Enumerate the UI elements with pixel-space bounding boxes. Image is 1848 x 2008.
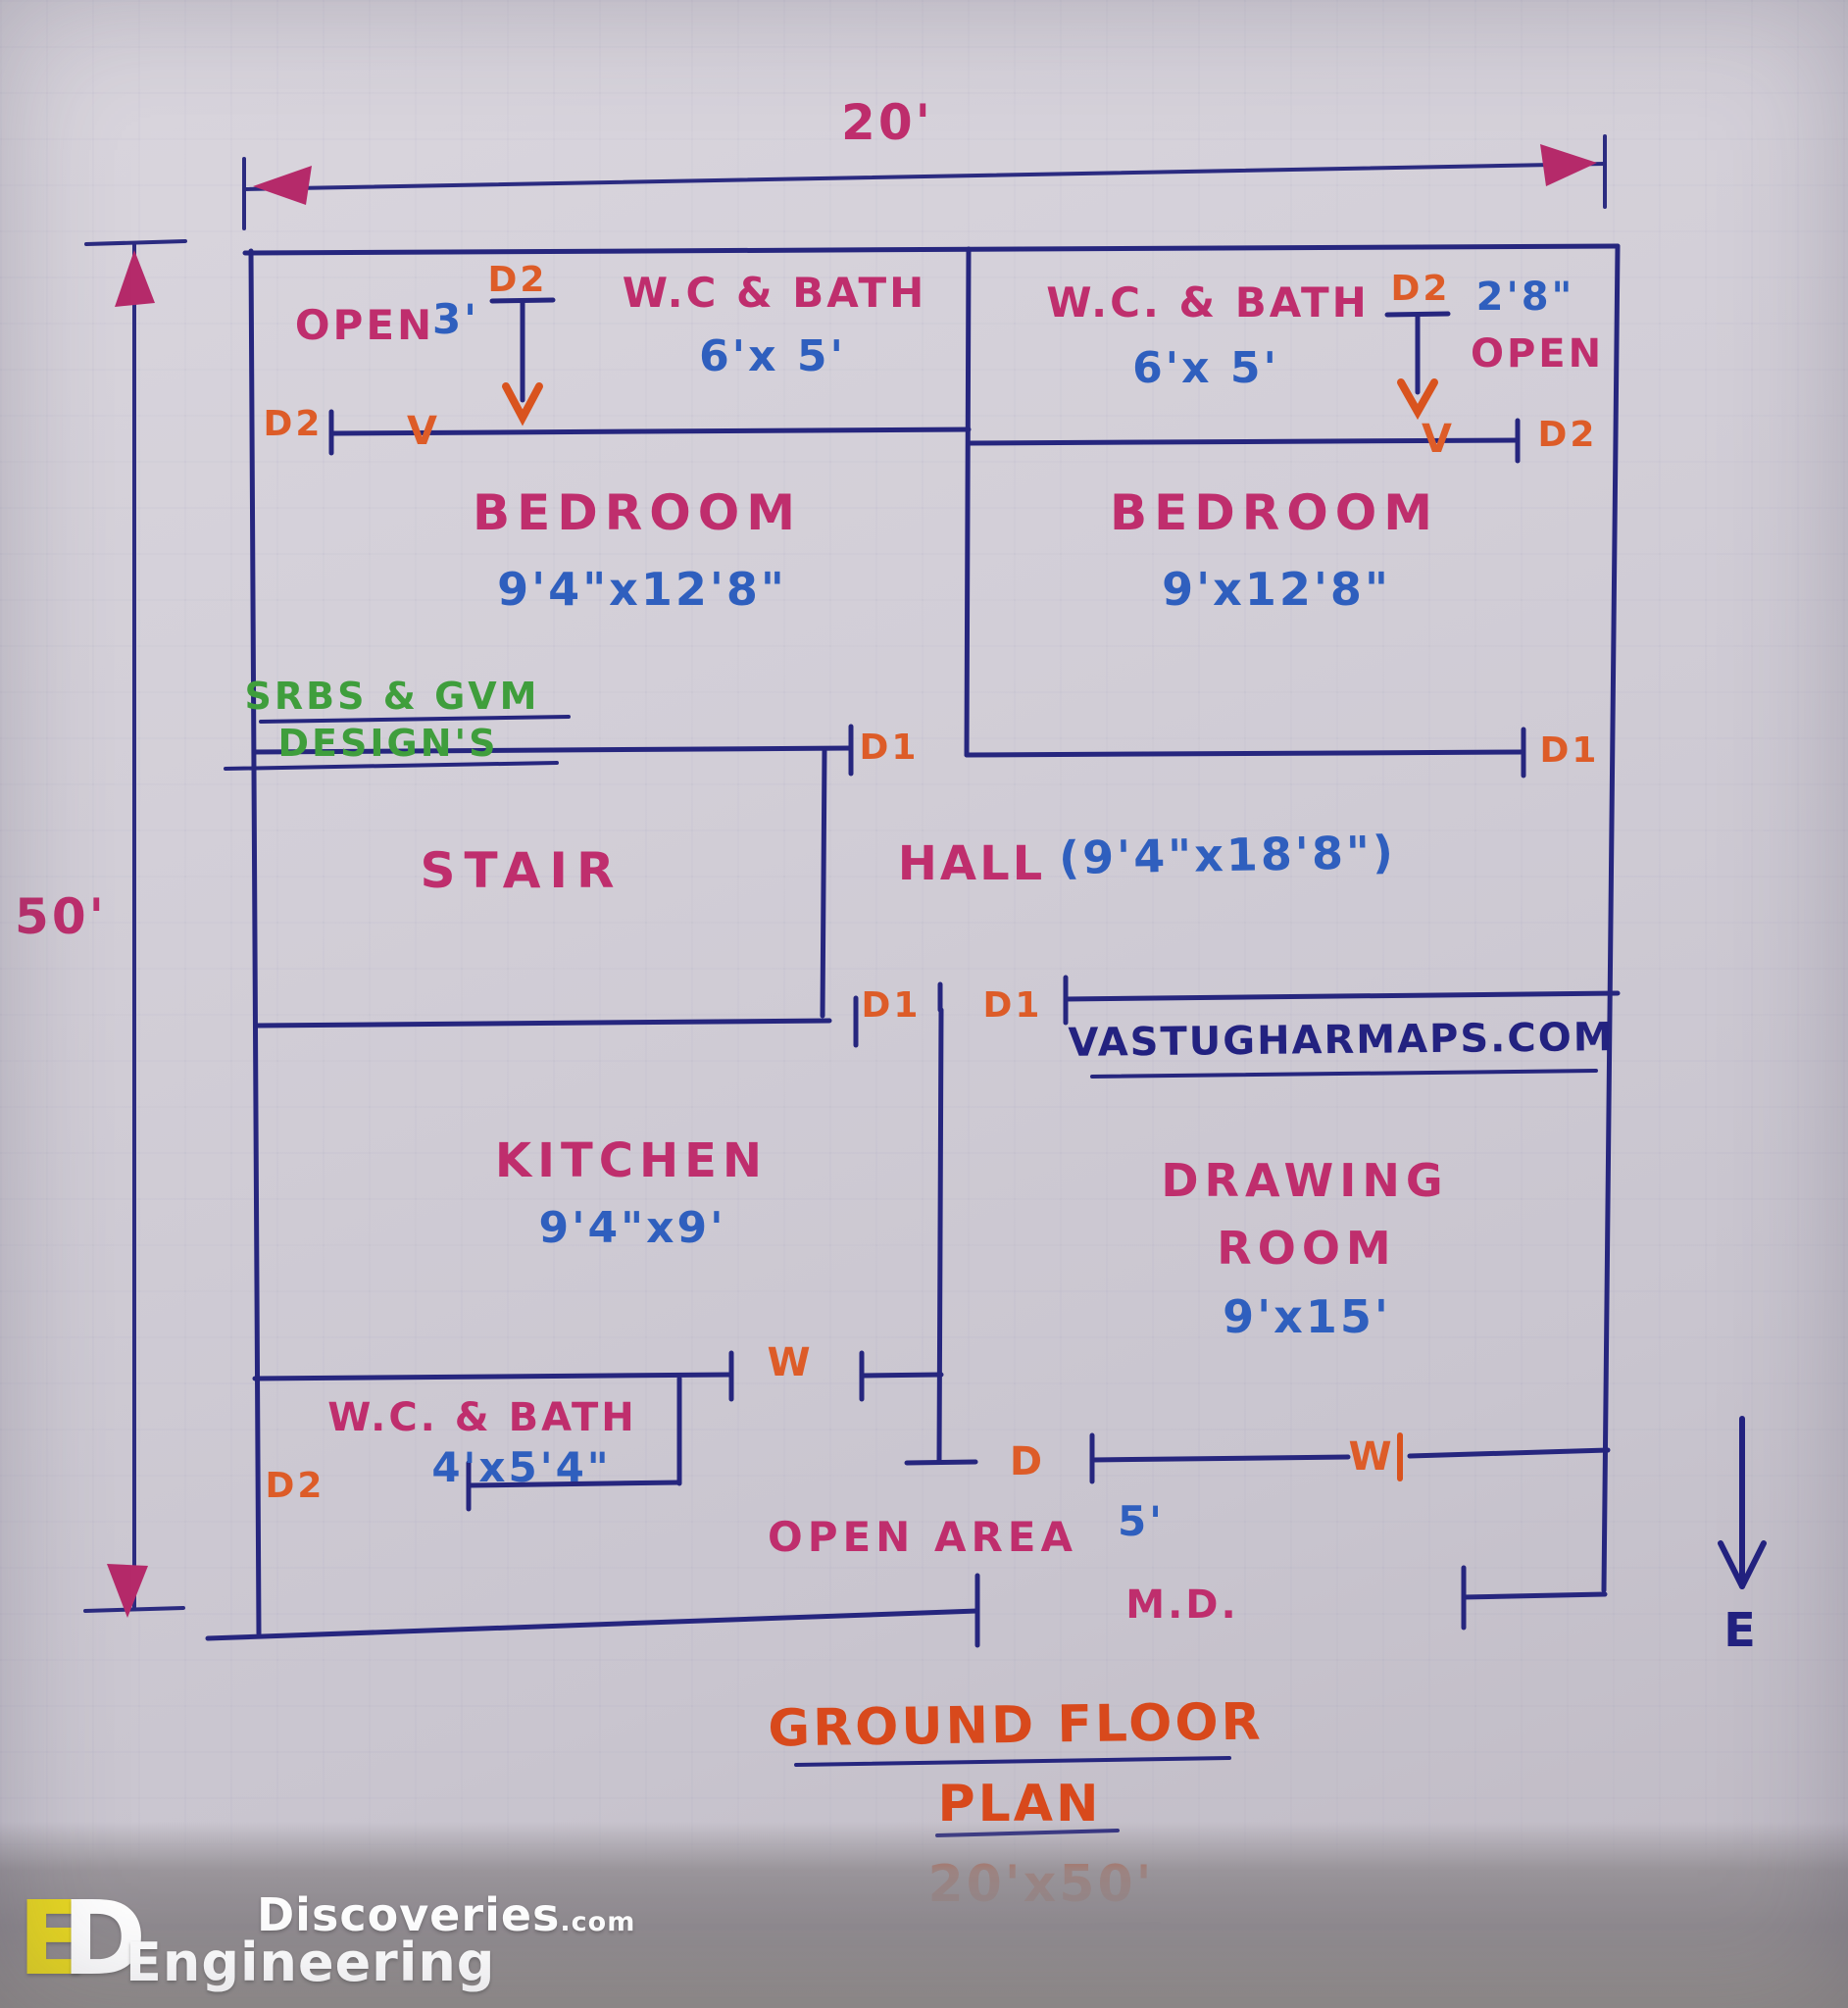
open-area-size: 5' — [1118, 1501, 1165, 1542]
plot-height-label: 50' — [15, 892, 107, 941]
door-d2-top-right-label: D2 — [1391, 272, 1451, 307]
plan-title-line1: GROUND FLOOR — [768, 1696, 1264, 1754]
designer-name-line2: DESIGN'S — [277, 725, 498, 762]
plot-width-label: 20' — [841, 98, 933, 147]
hall-room-size: (9'4"x18'8") — [1059, 829, 1397, 880]
wc-bath-top-right-name: W.C. & BATH — [1046, 282, 1370, 324]
wc-bath-lower-name: W.C. & BATH — [327, 1398, 636, 1437]
drawing-room-name-line1: DRAWING — [1161, 1158, 1448, 1203]
door-d1-bedroom-left-label: D1 — [860, 730, 920, 766]
drawing-room-size: 9'x15' — [1223, 1294, 1391, 1339]
wc-bath-lower-size: 4'x5'4" — [431, 1447, 611, 1488]
door-d1-hall-left-label: D1 — [862, 988, 922, 1024]
door-d2-top-left-label: D2 — [488, 263, 548, 298]
bedroom-left-size: 9'4"x12'8" — [497, 567, 787, 612]
door-d2-wall-left-label: D2 — [264, 407, 324, 442]
door-d-hall-label: D — [1010, 1442, 1045, 1481]
compass-east-label: E — [1723, 1607, 1759, 1654]
watermark-url: VASTUGHARMAPS.COM — [1068, 1018, 1614, 1063]
open-area-label: OPEN AREA — [768, 1517, 1077, 1558]
open-right-label: OPEN — [1471, 334, 1604, 374]
wc-bath-top-left-name: W.C & BATH — [623, 273, 927, 314]
floor-plan-photo: 20' 50' OPEN 3' D2 W.C & BATH 6'x 5' W.C… — [0, 0, 1848, 2008]
bedroom-right-size: 9'x12'8" — [1162, 567, 1391, 612]
door-d2-wc-label: D2 — [266, 1469, 325, 1504]
door-d1-hall-right-label: D1 — [983, 988, 1043, 1024]
open-left-size: 3' — [432, 299, 479, 340]
open-left-label: OPEN — [295, 305, 434, 346]
door-d2-wall-right-label: D2 — [1538, 418, 1598, 453]
window-drawing-label: W — [1348, 1437, 1394, 1477]
wc-bath-top-right-size: 6'x 5' — [1132, 347, 1279, 390]
photo-bottom-band: E D Discoveries.com Engineering — [0, 1822, 1848, 2008]
vent-left-label: V — [407, 412, 440, 451]
brand-com-suffix: .com — [560, 1907, 635, 1937]
main-door-label: M.D. — [1125, 1585, 1238, 1625]
bedroom-right-name: BEDROOM — [1110, 488, 1439, 537]
designer-name-line1: SRBS & GVM — [245, 678, 540, 715]
kitchen-room-name: KITCHEN — [495, 1137, 768, 1184]
brand-engineering-text: Engineering — [125, 1932, 495, 1993]
door-d1-bedroom-right-label: D1 — [1540, 733, 1600, 769]
window-kitchen-label: W — [767, 1343, 813, 1382]
stair-room-label: STAIR — [420, 846, 623, 895]
drawing-room-name-line2: ROOM — [1217, 1226, 1396, 1271]
wc-bath-top-left-size: 6'x 5' — [699, 335, 846, 378]
bedroom-left-name: BEDROOM — [473, 488, 802, 537]
east-arrow-icon — [1721, 1419, 1764, 1586]
vent-right-label: V — [1422, 420, 1455, 459]
hall-room-label: HALL — [898, 840, 1046, 887]
open-right-size: 2'8" — [1476, 277, 1575, 317]
kitchen-room-size: 9'4"x9' — [538, 1207, 725, 1250]
